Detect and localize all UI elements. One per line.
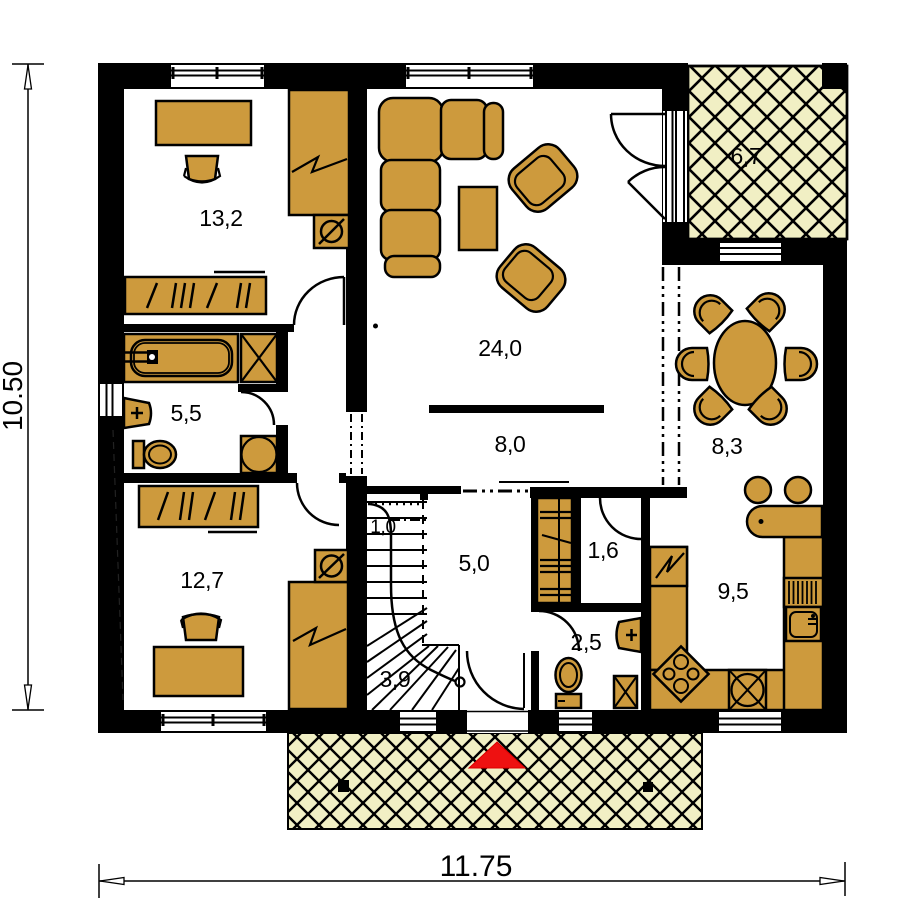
svg-text:24,0: 24,0 <box>478 335 522 361</box>
svg-text:2,5: 2,5 <box>570 629 601 655</box>
svg-text:5,0: 5,0 <box>458 550 489 576</box>
svg-text:3,9: 3,9 <box>379 666 410 692</box>
svg-text:8,3: 8,3 <box>711 433 742 459</box>
svg-text:8,0: 8,0 <box>494 431 525 457</box>
svg-text:12,7: 12,7 <box>180 567 224 593</box>
svg-text:10.50: 10.50 <box>0 361 28 431</box>
svg-text:1,0: 1,0 <box>370 517 396 538</box>
svg-text:1,6: 1,6 <box>587 537 618 563</box>
svg-text:5,5: 5,5 <box>170 400 201 426</box>
svg-text:9,5: 9,5 <box>717 578 748 604</box>
svg-text:6,7: 6,7 <box>730 143 761 169</box>
svg-text:13,2: 13,2 <box>199 205 243 231</box>
svg-text:11.75: 11.75 <box>440 850 513 883</box>
